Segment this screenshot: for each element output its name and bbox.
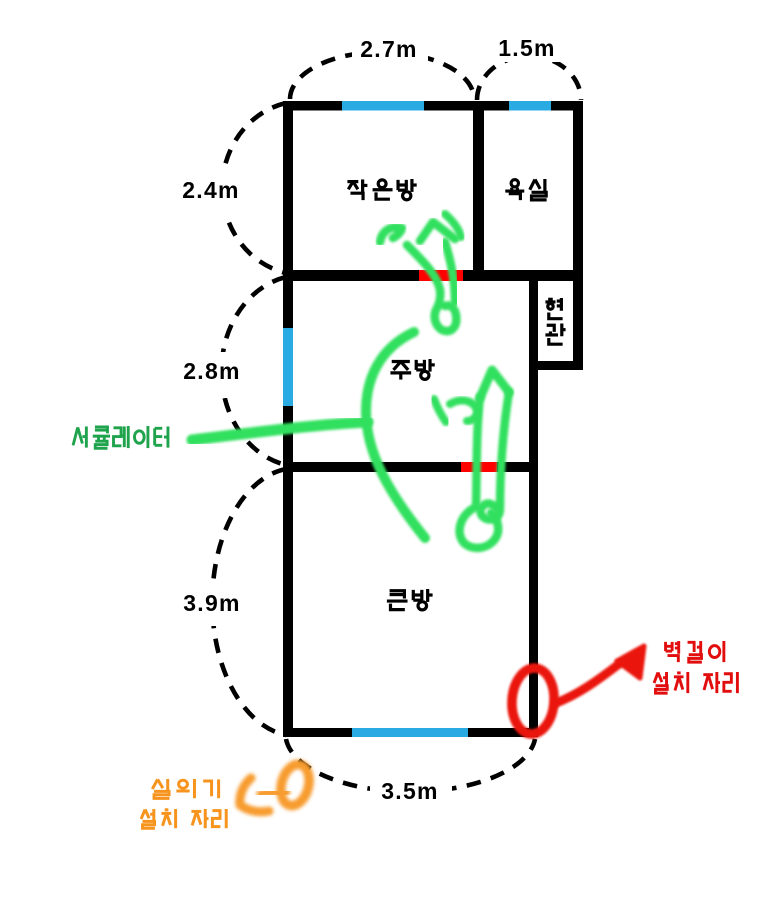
svg-text:3.9m: 3.9m — [183, 590, 241, 616]
svg-text:1.5m: 1.5m — [498, 35, 556, 61]
svg-text:2.7m: 2.7m — [360, 36, 418, 62]
svg-text:3.5m: 3.5m — [381, 778, 439, 804]
svg-text:2.8m: 2.8m — [183, 358, 241, 384]
svg-text:2.4m: 2.4m — [182, 177, 240, 203]
